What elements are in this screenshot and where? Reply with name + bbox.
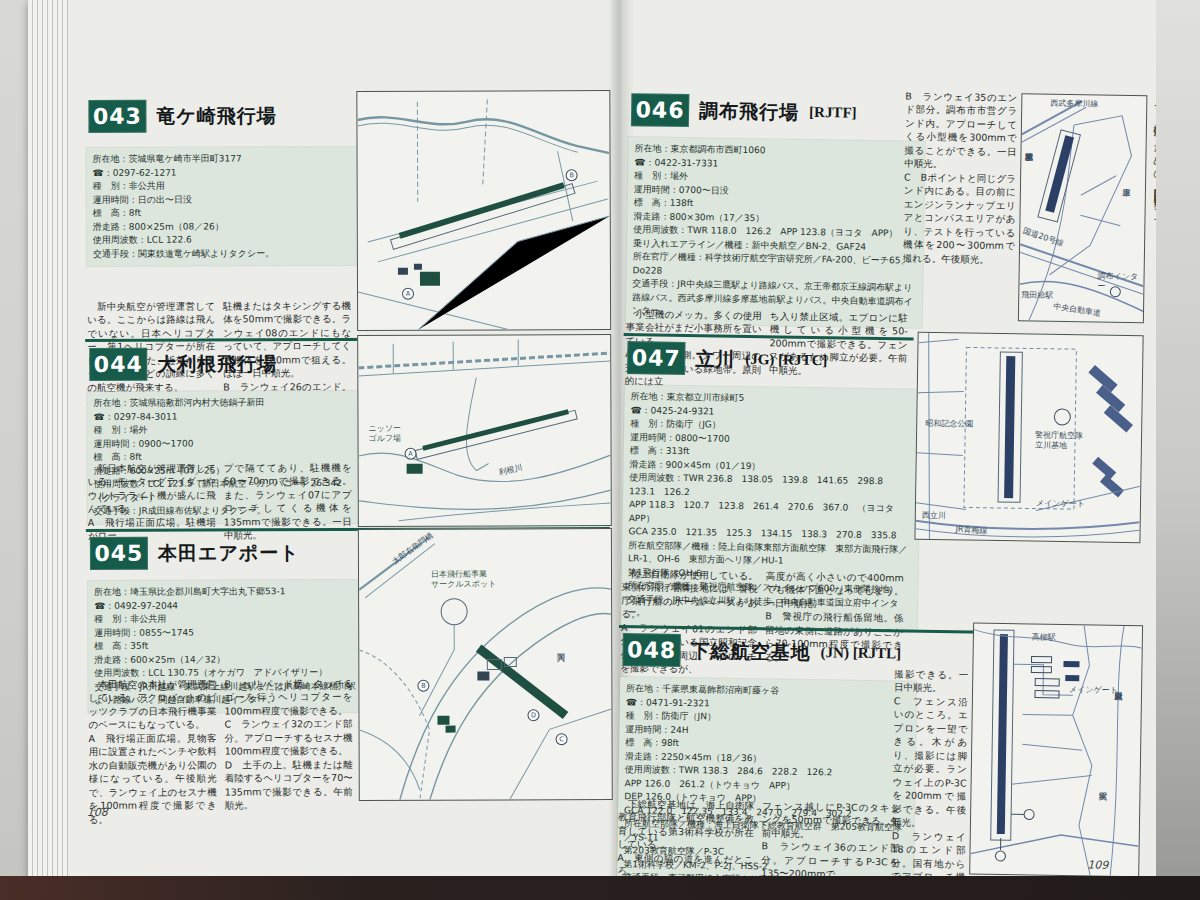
entry-044-title: 大利根飛行場 [157, 351, 277, 377]
entry-048-text-col2: フェンス越しにP-3Cのタキシングを50mmで撮影できる。午前中順光。 B ラン… [761, 799, 900, 882]
entry-043-header: 043 竜ケ崎飛行場 [88, 99, 277, 133]
entry-048-number: 048 [622, 633, 681, 667]
map-045-point-b: B [417, 680, 429, 692]
entry-048-text-col1: 下総航空基地は、海上自衛隊教育飛行部隊と航空機整備を教育している第3術科学校が所… [617, 797, 754, 880]
map-046: 西武多摩川線 多摩墓地前駅 国道20号線 飛田給駅 中央自動車道 調布インター … [1018, 93, 1148, 323]
map-047-label-nishitachikawa: 西立川 [922, 511, 946, 521]
entry-046-number: 046 [631, 93, 690, 127]
book-photo: 043 竜ケ崎飛行場 所在地：茨城県竜ケ崎市半田町3177 ☎：0297-62-… [0, 0, 1200, 900]
table-edge [0, 876, 1200, 900]
entry-046-text-col3: B ランウェイ35のエンド部分。調布市市営グランド内。アプローチしてくる小型機を… [903, 89, 1018, 266]
entry-046-code: [RJTF] [809, 104, 857, 122]
entry-045-text-col1: 本田航空の本社が管理運営している。アクロバットのピッツクラブの日本飛行機事業のベ… [88, 677, 217, 826]
right-page-number: 109 [1087, 858, 1108, 871]
left-page-number: 108 [87, 806, 108, 819]
map-046-label-tobitakyu: 飛田給駅 [1021, 290, 1053, 300]
entry-044-header: 044 大利根飛行場 [89, 347, 277, 381]
entry-045-title: 本田エアポート [158, 540, 300, 566]
entry-043-number: 043 [88, 100, 146, 133]
entry-045-header: 045 本田エアポート [90, 536, 300, 570]
map-046-label-interchange: 調布インター [1097, 271, 1143, 291]
map-044: ニッソー ゴルフ場 利根川 A [357, 334, 612, 527]
map-045-point-d: D [527, 709, 539, 721]
entry-047-header: 047 立川 (JG) [RJTC] [627, 341, 828, 377]
map-043: A B [356, 90, 611, 331]
map-048: 高柳駅 東武野田線 六実駅 メインゲート [969, 623, 1143, 878]
entry-047-title: 立川 [695, 346, 735, 373]
page-edge-right [1156, 0, 1200, 876]
map-044-label-golf: ニッソー ゴルフ場 [368, 424, 401, 443]
map-048-label-takayanagi: 高柳駅 [1032, 633, 1056, 643]
entry-047-number: 047 [627, 341, 686, 375]
entry-048-title: 下総航空基地 [690, 638, 810, 666]
right-page: 046 調布飛行場 [RJTF] 所在地：東京都調布市西町1060 ☎：0422… [609, 55, 1162, 881]
entry-045-text-col2: B ヘリパッド横。タッチ&ゴーを行うヘリコプターを100mm程度で撮影できる。 … [224, 677, 352, 812]
map-043-point-b: B [566, 169, 578, 181]
entry-048-text-col3: 撮影できる。一日中順光。 C フェンス沿いのところ。エプロンを一望できる。木があ… [890, 667, 968, 900]
map-045: 日本飛行船事業 サークルスポット 太郎右衛門橋 入間川 B C D [358, 528, 613, 801]
map-047-label-gate: メインゲート [1036, 499, 1085, 509]
map-046-label-busstop: 西武多摩川線 [1050, 99, 1098, 109]
map-043-point-a: A [402, 288, 414, 300]
entry-043-info: 所在地：茨城県竜ケ崎市半田町3177 ☎：0297-62-1271 種 別：非公… [87, 147, 361, 266]
entry-046-title: 調布飛行場 [699, 98, 799, 126]
map-045-point-c: C [556, 733, 568, 745]
entry-047-code: (JG) [RJTC] [745, 351, 827, 369]
entry-048-code: (JN) [RJTL] [821, 644, 902, 662]
entry-044-number: 044 [89, 348, 147, 381]
map-048-label-gate: メインゲート [1069, 685, 1118, 695]
entry-046-info: 所在地：東京都調布市西町1060 ☎：0422-31-7331 種 別：場外 運… [626, 137, 925, 327]
map-047-label-police: 警視庁航空隊 立川基地 [1035, 431, 1083, 451]
left-page: 043 竜ケ崎飛行場 所在地：茨城県竜ケ崎市半田町3177 ☎：0297-62-… [60, 0, 623, 876]
map-044-point-a: A [405, 448, 417, 460]
map-045-label-spot: 日本飛行船事業 サークルスポット [431, 569, 496, 588]
map-047: 昭和記念公園 警視庁航空隊 立川基地 メインゲート 西立川 JR青梅線 [914, 332, 1143, 544]
entry-048-header: 048 下総航空基地 (JN) [RJTL] [622, 633, 901, 670]
entry-043-title: 竜ケ崎飛行場 [156, 103, 277, 129]
entry-045-number: 045 [90, 537, 148, 570]
entry-046-header: 046 調布飛行場 [RJTF] [631, 93, 857, 130]
map-047-label-park: 昭和記念公園 [925, 419, 973, 429]
